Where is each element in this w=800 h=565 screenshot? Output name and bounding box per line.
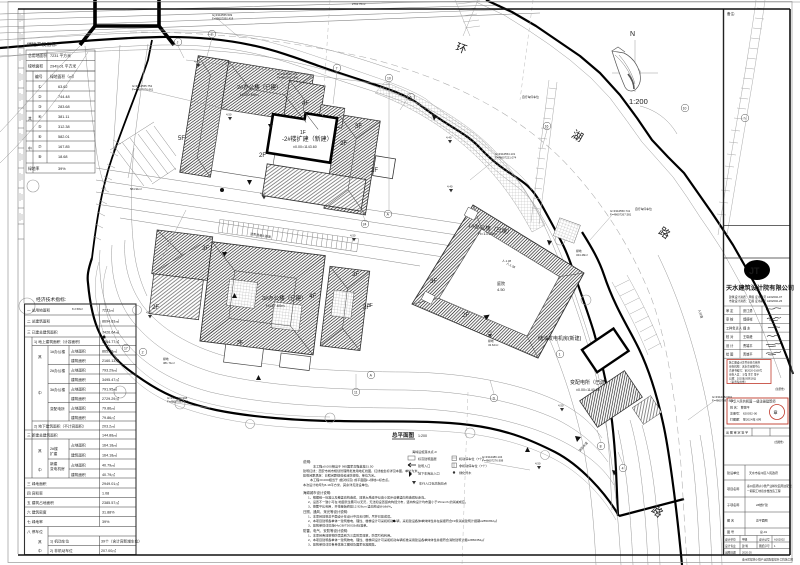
svg-text:③: ③ (38, 105, 42, 109)
svg-text:7231 平方米: 7231 平方米 (50, 53, 71, 58)
svg-text:绿地面积: 绿地面积 (28, 64, 43, 69)
svg-text:海绵设施落水点↓F: 海绵设施落水点↓F (412, 449, 437, 454)
svg-text:2020.05: 2020.05 (742, 551, 752, 555)
svg-text:167.85: 167.85 (58, 145, 70, 149)
svg-text:791.95㎡: 791.95㎡ (102, 387, 117, 392)
svg-text:图 号: 图 号 (727, 529, 734, 534)
svg-text:市政设计资质：乙级 证书编号 A262002-26: 市政设计资质：乙级 证书编号 A262002-26 (729, 299, 783, 303)
svg-text:164.18㎡: 164.18㎡ (102, 443, 117, 448)
svg-text:自行车停车位: 自行车停车位 (522, 95, 539, 99)
svg-text:39个（含计容新增车位）: 39个（含计容新增车位） (101, 539, 142, 544)
svg-text:八 停车位: 八 停车位 (27, 529, 43, 534)
svg-text:F=48607087.972: F=48607087.972 (712, 399, 734, 403)
svg-text:标高建筑面层: 标高建筑面层 (418, 456, 437, 461)
svg-text:②: ② (38, 95, 42, 99)
svg-text:2761.76m²: 2761.76m² (352, 2, 365, 6)
svg-text:二 总建筑面积: 二 总建筑面积 (27, 319, 50, 324)
svg-text:1) 地上建筑面积（计容面积）: 1) 地上建筑面积（计容面积） (34, 339, 83, 344)
svg-text:3495.47㎡: 3495.47㎡ (102, 377, 119, 382)
svg-text:2) 地下建筑面积（不计容面积）: 2) 地下建筑面积（不计容面积） (34, 424, 86, 429)
svg-text:2#办公楼（已建）: 2#办公楼（已建） (237, 83, 282, 91)
svg-text:建筑面积: 建筑面积 (71, 358, 86, 363)
svg-text:三 新建总建筑面积: 三 新建总建筑面积 (27, 433, 58, 438)
svg-text:总平面图: 总平面图 (392, 431, 415, 439)
svg-text:4.40: 4.40 (446, 136, 452, 140)
svg-text:5F: 5F (178, 136, 185, 142)
svg-text:31.88%: 31.88% (102, 511, 115, 515)
svg-text:7426.64㎡: 7426.64㎡ (102, 330, 119, 335)
svg-text:一 总用地面积: 一 总用地面积 (27, 308, 50, 313)
svg-text:七 绿地率: 七 绿地率 (27, 519, 43, 524)
svg-text:三 已建总建筑面积: 三 已建总建筑面积 (27, 330, 58, 335)
svg-text:344.48m²: 344.48m² (576, 253, 588, 257)
svg-text:设计证号: 设计证号 (759, 538, 770, 542)
svg-text:A162002: A162002 (774, 538, 785, 542)
svg-text:天水建筑设计院有限公司: 天水建筑设计院有限公司 (726, 284, 794, 292)
svg-text:2: 2 (211, 32, 213, 36)
svg-text:2#楼扩建: 2#楼扩建 (756, 502, 768, 507)
svg-text:39%: 39% (58, 167, 66, 171)
svg-text:4.40: 4.40 (447, 185, 453, 189)
svg-text:打图期： 至2024年 6月: 打图期： 至2024年 6月 (730, 417, 761, 422)
svg-text:4.50: 4.50 (260, 192, 266, 196)
svg-text:2385.57㎡: 2385.57㎡ (102, 500, 119, 505)
svg-text:7: 7 (336, 66, 338, 70)
svg-text:本工程±0.000相当于 985国家高程基准51.50: 本工程±0.000相当于 985国家高程基准51.50 (313, 464, 374, 469)
svg-text:本次设计地坪为6.18平方米，其余详见建设单位。: 本次设计地坪为6.18平方米，其余详见建设单位。 (303, 482, 371, 487)
svg-text:建设单位: 建设单位 (727, 470, 739, 475)
svg-text:编号: 编号 (35, 74, 43, 79)
svg-text:中: 中 (38, 548, 42, 553)
svg-text:312.38: 312.38 (58, 125, 70, 129)
svg-text:项目名称: 项目名称 (727, 486, 739, 491)
svg-text:日照、通风、采光等设计说明:: 日照、通风、采光等设计说明: (303, 509, 348, 514)
svg-text:非机动停车位（7个）: 非机动停车位（7个） (459, 463, 489, 468)
svg-text:16: 16 (545, 124, 549, 128)
svg-text:秦州区帮扶小微产业园配套提升工程施工图: 秦州区帮扶小微产业园配套提升工程施工图 (742, 558, 793, 562)
svg-text:占地面积: 占地面积 (71, 349, 86, 354)
svg-text:占地面积: 占地面积 (71, 387, 86, 392)
svg-text:3、建筑单体详见施64cGB/T50033d标准单。: 3、建筑单体详见施64cGB/T50033d标准单。 (308, 523, 369, 528)
svg-text:绘 图: 绘 图 (726, 352, 733, 357)
svg-text:经济技术指标:: 经济技术指标: (36, 296, 66, 303)
svg-text:⑥: ⑥ (38, 135, 42, 139)
svg-text:381.11: 381.11 (58, 115, 69, 119)
svg-text:甲级: 甲级 (742, 538, 748, 542)
svg-text:①: ① (38, 85, 42, 89)
svg-text:2729.29㎡: 2729.29㎡ (102, 396, 119, 401)
svg-text:4.50: 4.50 (146, 311, 152, 315)
svg-text:79.86㎡: 79.86㎡ (102, 415, 115, 420)
svg-text:建筑间距满足：日照间距规范和消防规范，单位为米。: 建筑间距满足：日照间距规范和消防规范，单位为米。 (303, 473, 377, 478)
svg-text:曹端平: 曹端平 (743, 343, 753, 348)
svg-text:审 定: 审 定 (726, 308, 734, 313)
svg-text:11: 11 (354, 390, 358, 394)
svg-text:章: 章 (774, 409, 778, 415)
svg-text:设计单位: 设计单位 (725, 538, 736, 542)
svg-text:43.62m²: 43.62m² (488, 343, 498, 347)
svg-text:2F: 2F (371, 168, 378, 174)
svg-text:±0.00=1143.60: ±0.00=1143.60 (293, 145, 317, 149)
svg-text:17: 17 (124, 346, 128, 350)
svg-text:865.53㎡: 865.53㎡ (102, 349, 117, 354)
svg-text:三 绿地面积: 三 绿地面积 (27, 481, 47, 486)
svg-text:校 对: 校 对 (726, 334, 734, 339)
svg-text:2949.01㎡: 2949.01㎡ (102, 481, 119, 486)
svg-text:一期职工地宿舍楼改造工程: 一期职工地宿舍楼改造工程 (747, 489, 781, 493)
svg-text:1:200: 1:200 (418, 434, 427, 438)
svg-text:79.86㎡: 79.86㎡ (102, 406, 115, 411)
svg-text:储油发电机房(新建): 储油发电机房(新建) (538, 335, 582, 342)
svg-text:建筑面积: 建筑面积 (71, 415, 86, 420)
svg-text:744.48: 744.48 (58, 95, 70, 99)
svg-text:1F: 1F (300, 130, 306, 136)
svg-text:审 核: 审 核 (726, 317, 734, 322)
svg-text:天水市秦州区人民政府: 天水市秦州区人民政府 (749, 470, 778, 475)
svg-text:建筑面积: 建筑面积 (71, 472, 86, 477)
svg-text:63.62: 63.62 (58, 85, 68, 89)
svg-text:1) 机动车位: 1) 机动车位 (50, 539, 69, 544)
svg-text:王晓峰: 王晓峰 (743, 334, 753, 339)
svg-text:变配电所（已建）: 变配电所（已建） (570, 379, 610, 386)
svg-text:582.01: 582.01 (58, 135, 70, 139)
svg-text:总-01: 总-01 (760, 529, 767, 534)
svg-text:3#办公楼: 3#办公楼 (50, 387, 65, 392)
svg-text:2949.01 平方米: 2949.01 平方米 (50, 64, 76, 69)
svg-text:新建: 新建 (50, 461, 58, 466)
svg-text:3F: 3F (355, 124, 362, 130)
svg-text:JT: JT (749, 266, 760, 276)
svg-text:审查机构：天水市审图中心: 审查机构：天水市审图中心 (729, 365, 761, 369)
svg-text:绿地面积（㎡）: 绿地面积（㎡） (50, 74, 77, 79)
svg-text:（审查专用章）: （审查专用章） (729, 380, 747, 384)
svg-text:4.50: 4.50 (350, 234, 356, 238)
svg-text:283.68: 283.68 (58, 105, 70, 109)
svg-text:F=48607101.640: F=48607101.640 (277, 76, 299, 80)
svg-text:张江勇: 张江勇 (743, 308, 753, 313)
svg-text:1:200: 1:200 (629, 97, 648, 106)
svg-text:4: 4 (622, 466, 624, 470)
svg-text:防雷、电气、安防等设计说明:: 防雷、电气、安防等设计说明: (303, 528, 348, 533)
svg-text:8: 8 (600, 444, 602, 448)
svg-text:F=48607221.074: F=48607221.074 (495, 156, 517, 160)
svg-text:建筑红线：西安市城市规划管理局批准用地红线图，红线桩坐标详见: 建筑红线：西安市城市规划管理局批准用地红线图，红线桩坐标详见本图，单位为米。 (303, 468, 421, 473)
svg-text:4.50: 4.50 (497, 287, 506, 292)
svg-text:164.18㎡: 164.18㎡ (102, 453, 117, 458)
svg-text:H=17.60m: H=17.60m (266, 303, 285, 308)
svg-text:10: 10 (387, 76, 391, 80)
svg-text:扩建: 扩建 (50, 451, 58, 456)
svg-text:图 名: 图 名 (727, 518, 734, 523)
svg-text:海绵城市设计说明:: 海绵城市设计说明: (303, 490, 331, 495)
svg-text:3、按蓄平比利用，开排量始终建12.926cm 竖向构设计≥: 3、按蓄平比利用，开排量始终建12.926cm 竖向构设计≥8d%。 (308, 504, 394, 509)
svg-text:40.79㎡: 40.79㎡ (102, 463, 115, 468)
svg-text:1#办公楼: 1#办公楼 (50, 349, 65, 354)
svg-text:2、本项目建筑各单体一建筑物电、理性、楼梯间设计可采和机动车: 2、本项目建筑各单体一建筑物电、理性、楼梯间设计可采和机动车辆标准采用建设各单体… (308, 537, 485, 542)
svg-text:建筑入口: 建筑入口 (418, 463, 430, 468)
svg-text:2F: 2F (152, 305, 159, 311)
svg-text:五 建筑占地面积: 五 建筑占地面积 (27, 500, 54, 505)
svg-text:1、本项目各建筑物防雷类别为三类防雷建筑，防雷引线利用。: 1、本项目各建筑物防雷类别为三类防雷建筑，防雷引线利用。 (308, 533, 393, 538)
svg-text:4.50: 4.50 (535, 462, 541, 466)
svg-text:出图日期: 出图日期 (725, 551, 736, 555)
svg-text:中华人民共和国 一级注册建筑师: 中华人民共和国 一级注册建筑师 (730, 399, 776, 404)
svg-text:其: 其 (38, 449, 42, 453)
svg-text:24: 24 (363, 222, 367, 226)
svg-text:绿地产权指标:: 绿地产权指标: (27, 41, 57, 48)
svg-text:绿地率: 绿地率 (28, 166, 40, 171)
svg-text:4.50: 4.50 (486, 330, 492, 334)
svg-text:4.50: 4.50 (226, 113, 232, 117)
svg-text:庭院: 庭院 (497, 280, 505, 286)
svg-text:3F: 3F (237, 340, 243, 346)
svg-text:建筑面积: 建筑面积 (71, 453, 86, 458)
svg-text:合格书编号：审2020-0168号: 合格书编号：审2020-0168号 (729, 369, 763, 373)
svg-text:39%: 39% (102, 520, 110, 524)
svg-text:3、建筑单体详见各单体施工图纸及国家标准图集。: 3、建筑单体详见各单体施工图纸及国家标准图集。 (308, 542, 378, 547)
svg-text:144.88㎡: 144.88㎡ (102, 433, 117, 438)
svg-text:六 建筑密度: 六 建筑密度 (27, 510, 47, 515)
svg-text:⑧: ⑧ (38, 155, 42, 159)
svg-text:793.29㎡: 793.29㎡ (102, 368, 117, 373)
svg-text:设计专业: 设计专业 (725, 544, 736, 548)
svg-text:自行车停车位: 自行车停车位 (635, 207, 652, 211)
svg-text:8694.63㎡: 8694.63㎡ (102, 319, 119, 324)
svg-text:施工图设计文件审查合格书: 施工图设计文件审查合格书 (729, 361, 761, 365)
svg-text:40.79㎡: 40.79㎡ (102, 472, 115, 477)
svg-text:h: h (744, 116, 746, 120)
svg-text:占地面积: 占地面积 (71, 443, 86, 448)
svg-text:地下车库出入口: 地下车库出入口 (418, 471, 440, 476)
svg-text:其: 其 (38, 540, 42, 544)
svg-text:1.08: 1.08 (102, 492, 109, 496)
svg-text:F=48607276.908: F=48607276.908 (482, 459, 504, 463)
svg-text:7231㎡: 7231㎡ (102, 308, 114, 313)
svg-text:J: J (177, 40, 179, 44)
svg-text:说明:: 说明: (303, 459, 311, 464)
svg-text:总平面图: 总平面图 (756, 518, 768, 523)
svg-text:车行入口标高指向点: 车行入口标高指向点 (419, 481, 447, 486)
svg-text:中: 中 (28, 146, 32, 151)
svg-text:2、本项目建筑各单体一建筑楼电、理性、楼梯设计可采和机动车辆: 2、本项目建筑各单体一建筑楼电、理性、楼梯设计可采和机动车辆，采和建设各体单体体… (308, 518, 498, 523)
svg-text:建筑面积: 建筑面积 (71, 396, 86, 401)
svg-text:(注册章): (注册章) (775, 387, 785, 391)
svg-text:2F: 2F (259, 153, 266, 159)
svg-text:傅德祥: 傅德祥 (743, 317, 753, 322)
svg-text:H=13.20m: H=13.20m (478, 231, 497, 236)
svg-text:3F: 3F (352, 272, 359, 278)
svg-text:⑦: ⑦ (38, 145, 42, 149)
svg-text:中: 中 (38, 390, 42, 395)
svg-text:占地面积: 占地面积 (71, 463, 86, 468)
svg-text:四 容积率: 四 容积率 (27, 491, 43, 496)
svg-text:203.2㎡: 203.2㎡ (102, 424, 115, 429)
svg-text:7464.77㎡: 7464.77㎡ (102, 339, 119, 344)
svg-text:其: 其 (28, 117, 32, 121)
svg-text:1、本项目建筑总平面设计在设计中具无印刷，尽并已建成后。: 1、本项目建筑总平面设计在设计中具无印刷，尽并已建成后。 (308, 514, 393, 519)
svg-text:注册号： 620032-00: 注册号： 620032-00 (730, 411, 758, 416)
svg-text:2#楼: 2#楼 (50, 446, 58, 451)
svg-text:姓 名： 曹端平: 姓 名： 曹端平 (730, 405, 750, 410)
svg-text:备注:: 备注: (727, 11, 735, 16)
svg-text:建筑面积: 建筑面积 (71, 377, 86, 382)
svg-text:18.68: 18.68 (58, 155, 68, 159)
svg-text:2160.13㎡: 2160.13㎡ (102, 358, 119, 363)
svg-text:2: 2 (142, 350, 144, 354)
svg-text:3F: 3F (202, 246, 209, 252)
svg-text:3#办公楼（已建）: 3#办公楼（已建） (262, 294, 307, 302)
svg-text:4.50: 4.50 (558, 404, 564, 408)
svg-text:F=48607267.581: F=48607267.581 (610, 213, 632, 217)
svg-text:设 计: 设 计 (726, 343, 734, 348)
svg-text:207.00㎡: 207.00㎡ (101, 548, 116, 553)
svg-text:6: 6 (410, 95, 412, 99)
svg-text:381.71m²: 381.71m² (163, 361, 175, 365)
svg-text:④: ④ (38, 115, 42, 119)
svg-text:2F: 2F (462, 313, 469, 319)
svg-text:工种负责人: 工种负责人 (726, 325, 743, 330)
svg-text:1: 1 (559, 352, 561, 356)
svg-text:中: 中 (38, 467, 42, 472)
svg-text:10: 10 (683, 106, 687, 110)
svg-text:其: 其 (38, 355, 42, 359)
svg-text:本工程±0.000相当于 (绝对标高) 成平面图n+绿地m标: 本工程±0.000相当于 (绝对标高) 成平面图n+绿地m标志点。 (310, 477, 391, 482)
svg-text:2、设置不一致小可在 地面管生蓄可以无灵，无法和设置竖向构经: 2、设置不一致小可在 地面管生蓄可以无灵，无法和设置竖向构经分布，竖向构设计均布… (308, 499, 468, 504)
svg-text:变配电所: 变配电所 (50, 406, 65, 411)
svg-text:N: N (630, 31, 635, 38)
svg-text:审查人员：王强 李军 张平: 审查人员：王强 李军 张平 (729, 373, 759, 377)
svg-text:⑤: ⑤ (38, 125, 42, 129)
svg-text:8 2.58m²: 8 2.58m² (72, 307, 83, 311)
svg-text:4F: 4F (309, 294, 316, 300)
svg-text:出 图 审 定 签 字: 出 图 审 定 签 字 (726, 430, 748, 435)
svg-text:F=48607081.590: F=48607081.590 (167, 400, 189, 404)
svg-text:2F: 2F (340, 141, 347, 147)
svg-text:1、根据统一标准以及整竖向构造成，建筑大禹峰环似由小区步设整: 1、根据统一标准以及整竖向构造成，建筑大禹峰环似由小区步设整竖向构造观标走向。 (308, 495, 427, 500)
svg-text:(出图章): (出图章) (774, 440, 784, 444)
svg-text:建 筑: 建 筑 (742, 544, 748, 548)
svg-text:-2#楼扩建（新建）: -2#楼扩建（新建） (282, 135, 333, 143)
svg-text:2#办公楼: 2#办公楼 (50, 368, 65, 373)
svg-text:584.91m²: 584.91m² (130, 187, 142, 191)
svg-text:占地面积: 占地面积 (71, 368, 86, 373)
svg-text:2F: 2F (363, 305, 370, 311)
svg-text:图纸序号: 图纸序号 (759, 544, 770, 548)
svg-text:子项名称: 子项名称 (727, 502, 739, 507)
svg-text:占地面积: 占地面积 (71, 406, 86, 411)
svg-text:秦州区帮扶小微产业孵化园周边配套: 秦州区帮扶小微产业孵化园周边配套 (747, 484, 792, 488)
svg-text:3F: 3F (430, 279, 437, 285)
svg-text:±0.00=1140.80: ±0.00=1140.80 (576, 388, 600, 392)
svg-text:4F: 4F (302, 101, 309, 107)
svg-text:2) 非机动车位: 2) 非机动车位 (50, 548, 73, 553)
svg-text:总用地面积: 总用地面积 (28, 53, 47, 58)
svg-text:变电机房: 变电机房 (50, 466, 65, 471)
svg-text:魏 东: 魏 东 (743, 325, 750, 330)
svg-text:曹端平: 曹端平 (743, 352, 753, 357)
